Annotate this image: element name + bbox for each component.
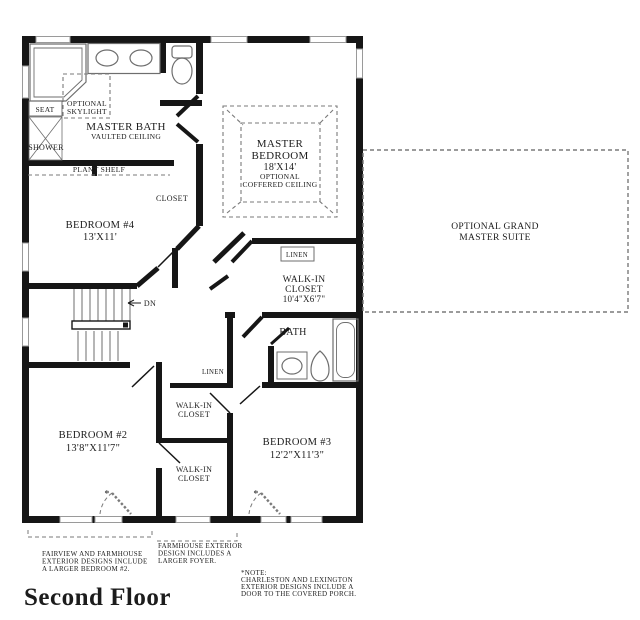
label-walkin-b-2: CLOSET — [178, 474, 210, 483]
toilet-icon — [311, 351, 329, 381]
label-seat: SEAT — [35, 105, 54, 114]
note-fairview-line3: A LARGER BEDROOM #2. — [42, 565, 130, 573]
label-walkin-a-2: CLOSET — [178, 410, 210, 419]
sink-icon — [130, 50, 152, 66]
note-bracket — [28, 530, 152, 537]
vanity-icon — [88, 44, 160, 74]
label-optional-suite-2: MASTER SUITE — [459, 233, 530, 243]
floor-plan: MASTER BATH VAULTED CEILING OPTIONAL SKY… — [0, 0, 640, 620]
label-master-bedroom-2: BEDROOM — [251, 150, 308, 162]
label-walkin-b-1: WALK-IN — [176, 465, 212, 474]
label-walkin-a-1: WALK-IN — [176, 401, 212, 410]
label-plant-shelf: PLANT SHELF — [73, 165, 125, 174]
label-walkin-master-1: WALK-IN — [283, 275, 326, 285]
tub-master-icon — [30, 44, 86, 101]
label-linen-upper: LINEN — [286, 252, 308, 259]
label-bedroom2: BEDROOM #2 — [59, 430, 128, 441]
label-bedroom3-dim: 12'2"X11'3" — [270, 450, 324, 461]
label-bedroom3: BEDROOM #3 — [263, 437, 332, 448]
sink-icon — [282, 358, 302, 374]
plan-title: Second Floor — [24, 584, 171, 611]
label-master-bedroom-opt2: COFFERED CEILING — [242, 180, 317, 189]
labels-group: MASTER BATH VAULTED CEILING OPTIONAL SKY… — [28, 99, 539, 500]
label-bedroom4-dim: 13'X11' — [83, 232, 117, 243]
label-skylight-2: SKYLIGHT — [67, 107, 107, 116]
label-master-bedroom-1: MASTER — [257, 138, 304, 150]
label-bedroom2-dim: 13'8"X11'7" — [66, 443, 120, 454]
label-bath: BATH — [279, 327, 306, 338]
label-walkin-master-dim: 10'4"X6'7" — [283, 294, 326, 304]
note-bracket — [157, 531, 237, 541]
toilet-icon — [172, 46, 192, 58]
label-optional-suite-1: OPTIONAL GRAND — [451, 222, 539, 232]
note-farmhouse-line3: LARGER FOYER. — [158, 557, 216, 565]
asterisk-mark: * — [253, 489, 258, 500]
label-linen-lower: LINEN — [202, 369, 224, 376]
label-shower: SHOWER — [28, 143, 64, 152]
optional-dashed-group — [28, 74, 628, 541]
asterisk-mark: * — [104, 489, 109, 500]
floor-plan-page: MASTER BATH VAULTED CEILING OPTIONAL SKY… — [0, 0, 640, 620]
note-charleston-line4: DOOR TO THE COVERED PORCH. — [241, 590, 356, 598]
stairs-icon — [72, 289, 130, 361]
label-dn: DN — [144, 299, 156, 308]
label-closet: CLOSET — [156, 194, 188, 203]
fixtures-group — [29, 44, 358, 382]
label-vaulted-ceiling: VAULTED CEILING — [91, 132, 161, 141]
sink-icon — [96, 50, 118, 66]
label-bedroom4: BEDROOM #4 — [66, 220, 135, 231]
